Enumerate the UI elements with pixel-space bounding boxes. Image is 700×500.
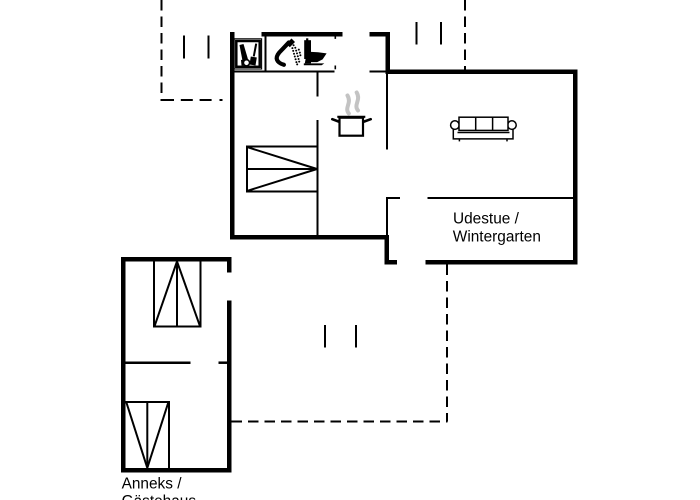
svg-text:Udestue /: Udestue /	[453, 211, 520, 228]
svg-text:Wintergarten: Wintergarten	[453, 228, 541, 245]
svg-text:Gästehaus: Gästehaus	[122, 493, 197, 500]
svg-text:Anneks /: Anneks /	[122, 476, 183, 493]
